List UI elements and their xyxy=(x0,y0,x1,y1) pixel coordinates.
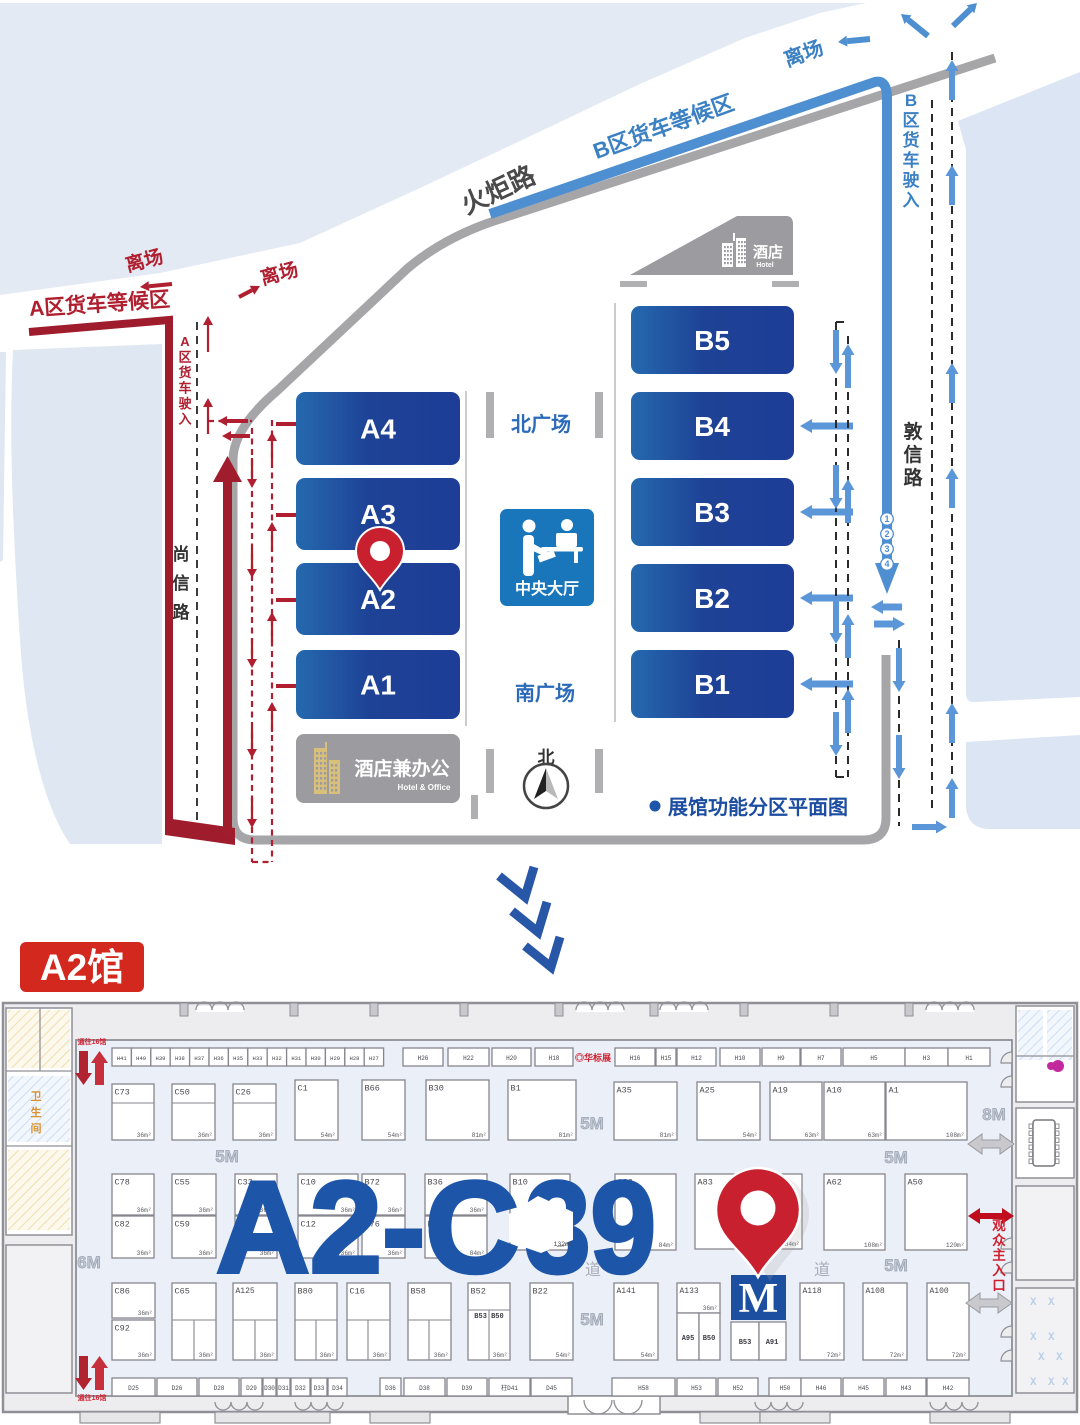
svg-text:H38: H38 xyxy=(175,1055,185,1062)
svg-text:A2馆: A2馆 xyxy=(40,947,124,988)
svg-text:D31: D31 xyxy=(278,1385,289,1392)
svg-text:D30: D30 xyxy=(264,1385,275,1392)
svg-text:Hotel: Hotel xyxy=(756,262,774,269)
svg-text:A区货车驶入: A区货车驶入 xyxy=(178,334,191,427)
svg-text:H16: H16 xyxy=(630,1055,641,1062)
svg-text:D32: D32 xyxy=(295,1385,306,1392)
svg-text:36m²: 36m² xyxy=(198,1132,213,1139)
svg-text:A91: A91 xyxy=(766,1339,779,1347)
svg-text:H43: H43 xyxy=(901,1385,912,1392)
svg-text:120m²: 120m² xyxy=(946,1242,965,1249)
svg-text:H29: H29 xyxy=(330,1055,340,1062)
svg-text:B1: B1 xyxy=(694,669,730,700)
svg-text:36m²: 36m² xyxy=(199,1250,214,1257)
svg-text:54m²: 54m² xyxy=(321,1132,336,1139)
svg-text:C50: C50 xyxy=(175,1088,190,1098)
svg-text:C59: C59 xyxy=(175,1220,190,1230)
svg-text:D25: D25 xyxy=(128,1385,139,1392)
svg-text:C78: C78 xyxy=(115,1178,130,1188)
svg-text:81m²: 81m² xyxy=(660,1132,675,1139)
svg-text:54m²: 54m² xyxy=(743,1132,758,1139)
svg-text:36m²: 36m² xyxy=(493,1352,508,1359)
svg-text:5M: 5M xyxy=(884,1148,908,1167)
svg-text:X: X xyxy=(1062,1377,1069,1389)
svg-text:84m²: 84m² xyxy=(659,1242,674,1249)
svg-text:X: X xyxy=(1030,1332,1037,1344)
svg-text:63m²: 63m² xyxy=(868,1132,883,1139)
svg-text:A25: A25 xyxy=(700,1086,715,1096)
svg-text:54m²: 54m² xyxy=(388,1132,403,1139)
svg-text:酒店: 酒店 xyxy=(753,243,783,261)
svg-text:柱D41: 柱D41 xyxy=(501,1384,518,1392)
svg-text:C55: C55 xyxy=(175,1178,190,1188)
svg-text:C1: C1 xyxy=(298,1084,308,1094)
svg-text:6M: 6M xyxy=(77,1253,101,1272)
svg-text:卫生间: 卫生间 xyxy=(31,1090,42,1135)
svg-text:酒店兼办公: 酒店兼办公 xyxy=(354,757,449,780)
svg-text:D34: D34 xyxy=(332,1385,343,1392)
svg-text:H15: H15 xyxy=(661,1055,672,1062)
svg-text:中央大厅: 中央大厅 xyxy=(515,579,579,598)
svg-text:C73: C73 xyxy=(115,1088,130,1098)
svg-text:D28: D28 xyxy=(214,1385,225,1392)
svg-text:◎华标展: ◎华标展 xyxy=(575,1052,611,1063)
svg-text:H28: H28 xyxy=(350,1055,360,1062)
svg-text:A118: A118 xyxy=(803,1287,822,1296)
svg-text:A10: A10 xyxy=(827,1086,842,1096)
svg-text:C86: C86 xyxy=(115,1287,130,1297)
svg-text:H35: H35 xyxy=(233,1055,243,1062)
svg-text:H53: H53 xyxy=(691,1385,702,1392)
svg-text:北广场: 北广场 xyxy=(511,412,571,436)
svg-text:X: X xyxy=(1048,1332,1055,1344)
svg-text:36m²: 36m² xyxy=(199,1207,214,1214)
svg-text:X: X xyxy=(1030,1377,1037,1389)
svg-text:H37: H37 xyxy=(194,1055,204,1062)
svg-text:敦信路: 敦信路 xyxy=(903,420,923,489)
svg-text:72m²: 72m² xyxy=(890,1352,905,1359)
svg-text:H32: H32 xyxy=(272,1055,282,1062)
svg-text:H45: H45 xyxy=(858,1385,869,1392)
svg-text:H22: H22 xyxy=(463,1055,474,1062)
svg-text:36m²: 36m² xyxy=(320,1352,335,1359)
svg-text:B区货车驶入: B区货车驶入 xyxy=(903,91,920,210)
svg-text:H39: H39 xyxy=(156,1055,166,1062)
svg-text:54m²: 54m² xyxy=(556,1352,571,1359)
svg-text:36m²: 36m² xyxy=(259,1132,274,1139)
svg-text:D33: D33 xyxy=(314,1385,325,1392)
svg-text:Hotel & Office: Hotel & Office xyxy=(398,783,451,792)
svg-text:A133: A133 xyxy=(680,1287,699,1296)
svg-text:36m²: 36m² xyxy=(434,1352,449,1359)
svg-text:A4: A4 xyxy=(360,414,396,445)
svg-text:36m²: 36m² xyxy=(260,1352,275,1359)
svg-text:H3: H3 xyxy=(923,1055,931,1062)
svg-text:X: X xyxy=(1048,1297,1055,1309)
svg-text:132m²: 132m² xyxy=(553,1241,573,1248)
svg-text:H31: H31 xyxy=(291,1055,302,1062)
svg-text:H40: H40 xyxy=(136,1055,146,1062)
svg-text:36m²: 36m² xyxy=(137,1207,152,1214)
svg-text:X: X xyxy=(1030,1297,1037,1309)
svg-text:X: X xyxy=(1048,1377,1055,1389)
svg-text:36m²: 36m² xyxy=(138,1310,153,1317)
svg-text:108m²: 108m² xyxy=(864,1242,883,1249)
svg-text:南广场: 南广场 xyxy=(515,681,575,705)
svg-text:H27: H27 xyxy=(369,1055,379,1062)
svg-text:54m²: 54m² xyxy=(641,1352,656,1359)
svg-text:X: X xyxy=(1056,1352,1063,1364)
svg-text:D45: D45 xyxy=(546,1385,557,1392)
svg-text:5M: 5M xyxy=(580,1114,604,1133)
svg-text:108m²: 108m² xyxy=(946,1132,965,1139)
svg-text:B53: B53 xyxy=(739,1339,752,1347)
svg-text:D26: D26 xyxy=(172,1385,183,1392)
svg-text:C26: C26 xyxy=(236,1088,251,1098)
svg-text:C92: C92 xyxy=(115,1324,130,1334)
svg-text:36m²: 36m² xyxy=(703,1305,718,1312)
svg-text:H9: H9 xyxy=(777,1055,785,1062)
svg-text:1: 1 xyxy=(884,514,889,524)
svg-text:A35: A35 xyxy=(617,1086,632,1096)
svg-text:H20: H20 xyxy=(506,1055,517,1062)
svg-text:72m²: 72m² xyxy=(952,1352,967,1359)
svg-text:尚信路: 尚信路 xyxy=(173,544,191,622)
svg-text:B50: B50 xyxy=(703,1335,716,1343)
svg-text:A108: A108 xyxy=(866,1287,885,1296)
svg-text:H5: H5 xyxy=(870,1055,878,1062)
svg-text:D38: D38 xyxy=(419,1385,430,1392)
svg-text:C65: C65 xyxy=(175,1287,190,1297)
svg-text:36m²: 36m² xyxy=(199,1352,214,1359)
svg-text:72m²: 72m² xyxy=(827,1352,842,1359)
svg-text:B30: B30 xyxy=(429,1084,444,1094)
svg-text:H30: H30 xyxy=(311,1055,321,1062)
svg-text:3: 3 xyxy=(884,544,889,554)
svg-text:A95: A95 xyxy=(682,1335,695,1343)
svg-text:H12: H12 xyxy=(691,1055,702,1062)
svg-text:H42: H42 xyxy=(943,1385,954,1392)
svg-text:36m²: 36m² xyxy=(138,1352,153,1359)
svg-text:8M: 8M xyxy=(982,1105,1006,1124)
svg-text:观众主入口: 观众主入口 xyxy=(992,1218,1006,1293)
svg-text:2: 2 xyxy=(884,529,889,539)
svg-text:M: M xyxy=(739,1276,779,1322)
svg-text:H52: H52 xyxy=(733,1385,744,1392)
svg-text:H1: H1 xyxy=(965,1055,973,1062)
svg-text:A62: A62 xyxy=(827,1178,842,1188)
svg-text:通往16馆: 通往16馆 xyxy=(78,1037,107,1046)
svg-text:通往16馆: 通往16馆 xyxy=(78,1393,107,1402)
svg-text:A2-C: A2-C xyxy=(216,1154,519,1300)
svg-text:H41: H41 xyxy=(117,1055,128,1062)
svg-text:A19: A19 xyxy=(773,1086,788,1096)
svg-text:C82: C82 xyxy=(115,1220,130,1230)
svg-text:B5: B5 xyxy=(694,325,730,356)
svg-text:B2: B2 xyxy=(694,583,730,614)
svg-text:A3: A3 xyxy=(360,499,396,530)
svg-text:D39: D39 xyxy=(462,1385,473,1392)
svg-text:81m²: 81m² xyxy=(559,1132,574,1139)
svg-text:A50: A50 xyxy=(908,1178,923,1188)
svg-text:H10: H10 xyxy=(735,1055,746,1062)
svg-text:H26: H26 xyxy=(418,1055,429,1062)
svg-text:36m²: 36m² xyxy=(373,1352,388,1359)
svg-text:36m²: 36m² xyxy=(137,1250,152,1257)
svg-text:X: X xyxy=(1038,1352,1045,1364)
svg-text:H33: H33 xyxy=(253,1055,263,1062)
svg-text:H7: H7 xyxy=(817,1055,825,1062)
svg-text:5M: 5M xyxy=(580,1310,604,1329)
svg-text:H50: H50 xyxy=(780,1385,791,1392)
svg-text:B53 B50: B53 B50 xyxy=(474,1313,503,1321)
svg-text:63m²: 63m² xyxy=(805,1132,820,1139)
svg-text:道: 道 xyxy=(814,1261,830,1279)
svg-text:H58: H58 xyxy=(638,1385,649,1392)
svg-text:D29: D29 xyxy=(246,1385,257,1392)
svg-text:B1: B1 xyxy=(511,1084,521,1094)
svg-text:A100: A100 xyxy=(930,1287,949,1296)
svg-text:5M: 5M xyxy=(884,1256,908,1275)
svg-text:81m²: 81m² xyxy=(472,1132,487,1139)
svg-text:36m²: 36m² xyxy=(137,1132,152,1139)
svg-text:A1: A1 xyxy=(889,1086,899,1096)
svg-text:H46: H46 xyxy=(816,1385,827,1392)
svg-text:B3: B3 xyxy=(694,497,730,528)
svg-text:4: 4 xyxy=(884,559,889,569)
svg-text:H36: H36 xyxy=(214,1055,224,1062)
svg-text:A83: A83 xyxy=(698,1178,713,1188)
svg-text:B4: B4 xyxy=(694,411,730,442)
svg-text:B66: B66 xyxy=(365,1084,380,1094)
svg-text:A1: A1 xyxy=(360,670,396,701)
svg-text:D36: D36 xyxy=(385,1385,396,1392)
svg-text:H18: H18 xyxy=(549,1055,560,1062)
svg-text:展馆功能分区平面图: 展馆功能分区平面图 xyxy=(668,795,848,819)
